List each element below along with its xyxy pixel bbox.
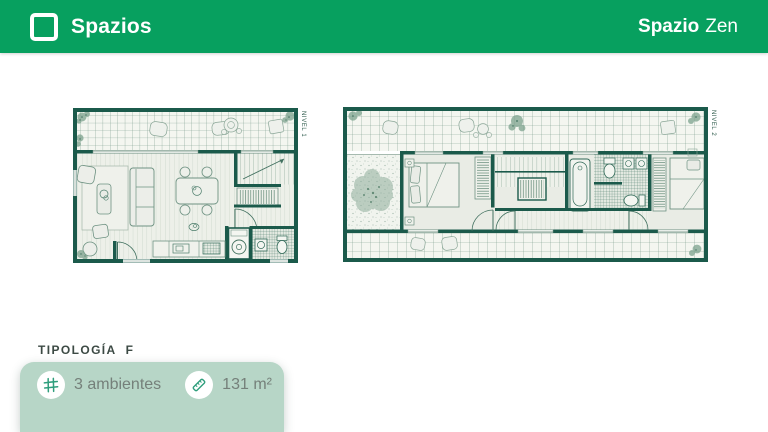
feature-rooms: 3 ambientes xyxy=(37,371,161,399)
ruler-icon xyxy=(185,371,213,399)
brand-name: Spazios xyxy=(71,15,152,39)
hash-grid-icon xyxy=(37,371,65,399)
brand-square-icon xyxy=(30,13,58,41)
feature-area: 131 m² xyxy=(185,371,272,399)
nivel-1-label: NIVEL 1 xyxy=(300,111,306,137)
brand: Spazios xyxy=(30,13,152,41)
project-name-regular: Zen xyxy=(705,16,738,37)
project-name-bold: Spazio xyxy=(638,16,699,37)
nivel-2-label: NIVEL 2 xyxy=(710,110,716,136)
typology-title: TIPOLOGÍAF xyxy=(38,343,134,357)
floorplan-nivel-2 xyxy=(343,107,708,262)
rooms-label: 3 ambientes xyxy=(74,376,161,394)
header-bar: Spazios SpazioZen xyxy=(0,0,768,53)
feature-card: 3 ambientes 131 m² xyxy=(20,362,284,432)
floorplan-nivel-1 xyxy=(73,108,298,263)
typology-title-text: TIPOLOGÍA xyxy=(38,343,117,357)
project-name: SpazioZen xyxy=(638,16,738,38)
area-label: 131 m² xyxy=(222,376,272,394)
typology-variant: F xyxy=(126,343,135,357)
typology-page: Spazios SpazioZen xyxy=(0,0,768,432)
